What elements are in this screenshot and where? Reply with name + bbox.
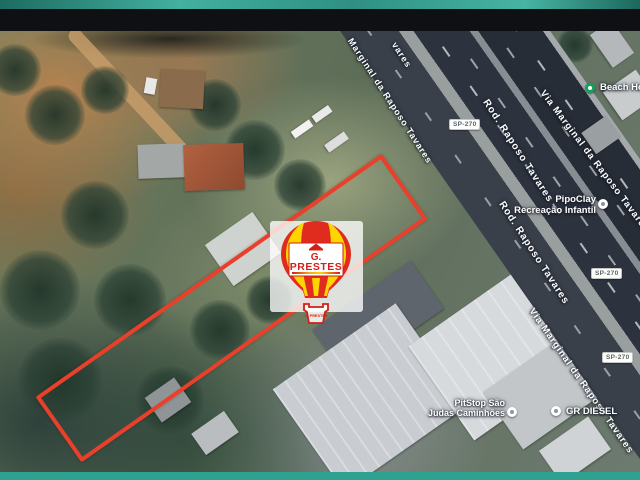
road-label: Marginal da Raposo Tavares [346,36,435,165]
route-badge-sp270: SP-270 [602,352,633,363]
road-label: Rod. Raposo Tavares [480,98,555,205]
road-label: vares [390,40,414,69]
route-badge-sp270: SP-270 [591,268,622,279]
agency-logo: G. PRESTES G. PRESTES [268,216,368,328]
poi-marker[interactable] [585,83,595,93]
poi-marker[interactable] [551,406,561,416]
poi-label[interactable]: PitStop SãoJudas Caminhões [428,398,505,418]
bottom-accent-bar [0,472,640,480]
poi-label[interactable]: Beach Hou [600,82,640,93]
basket-label: G. PRESTES [305,314,328,318]
road-label: Via Marginal da Raposo Tavares [526,306,635,456]
logo-name: PRESTES [290,261,343,273]
poi-label[interactable]: GR DIESEL [566,406,617,417]
satellite-map[interactable]: Marginal da Raposo TavaresvaresRod. Rapo… [0,31,640,472]
route-badge-sp270: SP-270 [449,119,480,130]
window-title-bar [0,9,640,31]
top-accent-bar [0,0,640,9]
screenshot-root: Marginal da Raposo TavaresvaresRod. Rapo… [0,0,640,480]
poi-marker[interactable] [507,407,517,417]
poi-marker[interactable] [598,199,608,209]
poi-label[interactable]: PipoClayRecreação Infantil [514,194,596,216]
balloon-logo-graphic: G. PRESTES G. PRESTES [268,216,368,328]
